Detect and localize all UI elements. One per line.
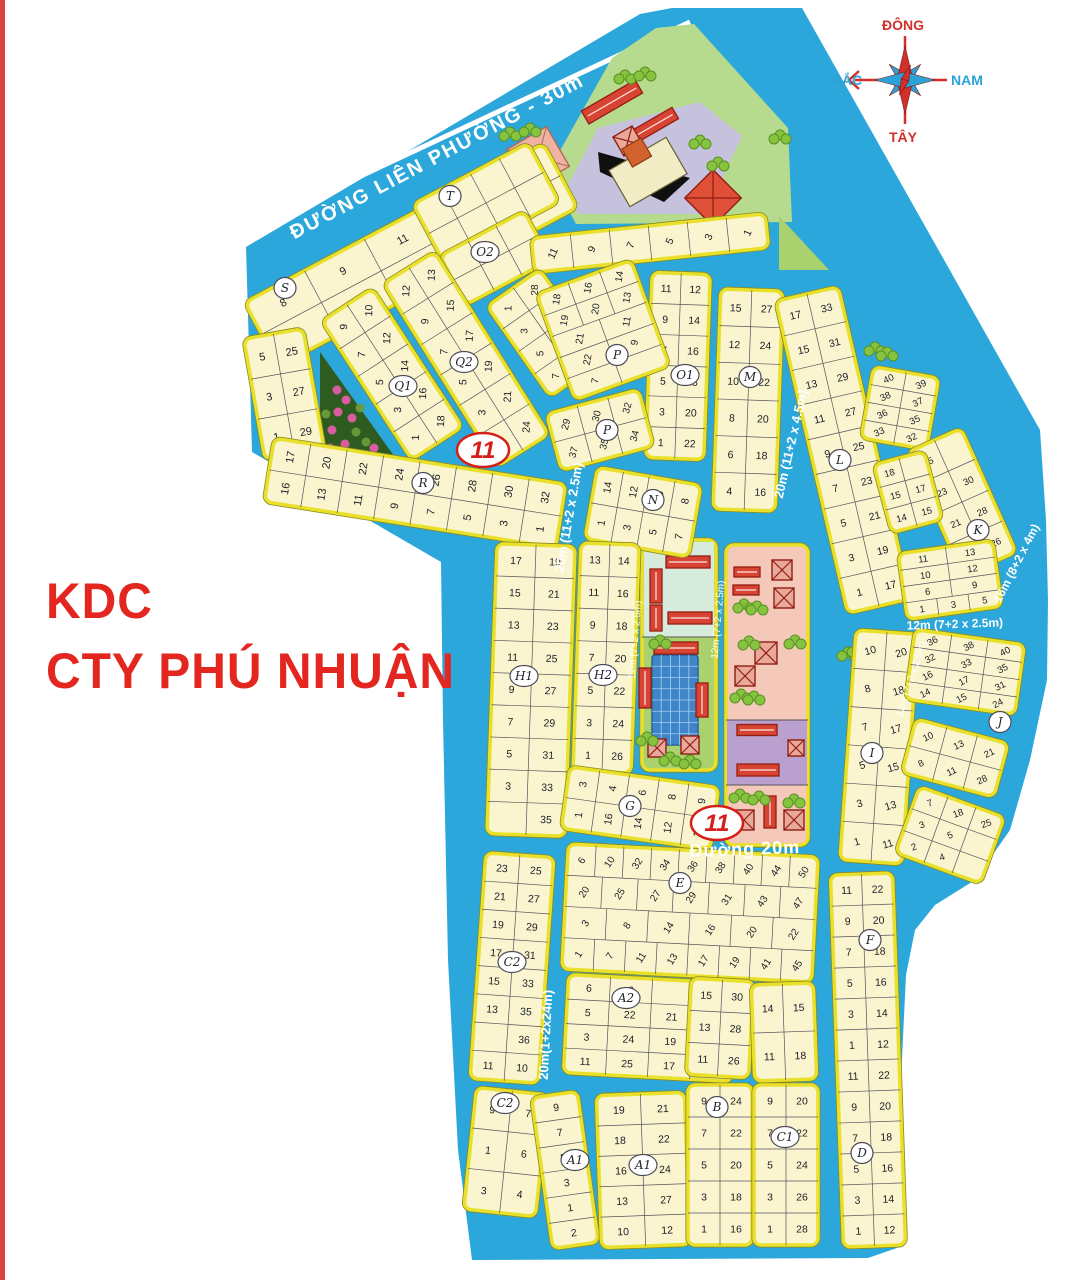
lot-number: 5 bbox=[457, 379, 469, 386]
svg-text:H1: H1 bbox=[514, 669, 533, 683]
svg-text:K: K bbox=[973, 523, 984, 537]
lot-number: 24 bbox=[730, 1096, 742, 1108]
svg-text:F: F bbox=[865, 933, 875, 947]
flower-dot bbox=[348, 414, 357, 423]
flower-dot bbox=[362, 438, 371, 447]
lot-number: 25 bbox=[621, 1058, 633, 1071]
lot-number: 31 bbox=[542, 750, 554, 762]
lot-number: 21 bbox=[548, 589, 560, 601]
lot-number: 20 bbox=[873, 915, 885, 927]
flower-dot bbox=[334, 408, 343, 417]
block-badge-L: L bbox=[829, 450, 851, 471]
lot-number: 7 bbox=[356, 351, 368, 357]
lot-number: 7 bbox=[701, 1128, 707, 1140]
lot-number: 18 bbox=[616, 620, 628, 632]
block-badge-T: T bbox=[439, 186, 461, 207]
lot-number: 9 bbox=[845, 916, 851, 928]
svg-text:E: E bbox=[675, 876, 685, 890]
lot-number: 25 bbox=[285, 345, 299, 359]
lot-number: 24 bbox=[521, 421, 534, 433]
lot-number: 5 bbox=[587, 685, 593, 697]
lot-number: 12 bbox=[627, 485, 641, 499]
lot-number: 14 bbox=[632, 817, 646, 830]
plan-title-line1: KDC bbox=[46, 566, 455, 636]
lot-number: 12 bbox=[883, 1224, 895, 1236]
lot-number: 15 bbox=[793, 1002, 805, 1014]
lot-number: 29 bbox=[543, 717, 555, 729]
lot-number: 5 bbox=[506, 748, 512, 760]
lot-number: 17 bbox=[464, 330, 477, 342]
lot-number: 18 bbox=[614, 1135, 626, 1147]
block-badge-H2: H2 bbox=[589, 665, 617, 686]
lot-number: 19 bbox=[483, 360, 496, 372]
svg-text:N: N bbox=[647, 493, 659, 507]
block-H1: 171915211323112592772953133335 bbox=[485, 542, 577, 839]
lot-number: 22 bbox=[623, 1009, 635, 1022]
lot-number: 20 bbox=[757, 413, 769, 425]
lot-number: 24 bbox=[759, 340, 771, 352]
lot-number: 11 bbox=[482, 1060, 494, 1073]
lot-number: 14 bbox=[688, 315, 700, 327]
svg-text:S: S bbox=[281, 281, 289, 295]
building-icon bbox=[681, 736, 699, 754]
lot-number: 21 bbox=[494, 891, 507, 904]
lot-number: 5 bbox=[584, 1007, 591, 1019]
svg-text:A1: A1 bbox=[566, 1153, 583, 1167]
block-J-top: 363840323335161731141524 bbox=[903, 627, 1026, 716]
block-badge-C1: C1 bbox=[771, 1127, 799, 1148]
lot-number: 3 bbox=[854, 1195, 860, 1207]
building-icon bbox=[650, 569, 662, 603]
block-badge-R: R bbox=[412, 473, 434, 494]
lot-number: 20 bbox=[730, 1160, 742, 1172]
lot-number: 16 bbox=[754, 487, 766, 499]
block-badge-I: I bbox=[861, 743, 883, 764]
lot-number: 9 bbox=[589, 620, 595, 632]
lot-number: 3 bbox=[392, 407, 404, 413]
lot-number: 29 bbox=[526, 921, 539, 934]
lot-number: 11 bbox=[661, 283, 672, 295]
svg-text:C1: C1 bbox=[777, 1130, 794, 1144]
lot-number: 13 bbox=[315, 488, 329, 502]
lot-number: 25 bbox=[546, 653, 558, 665]
lot-number: 16 bbox=[730, 1224, 742, 1236]
lot-number: 11 bbox=[352, 494, 366, 507]
lot-number: 16 bbox=[615, 1165, 627, 1177]
svg-text:L: L bbox=[835, 453, 844, 467]
lot-number: 19 bbox=[613, 1104, 625, 1116]
lot-number: 24 bbox=[393, 467, 407, 481]
svg-text:B: B bbox=[712, 1100, 722, 1114]
block-E: 6103234363840445020252729314347381416202… bbox=[560, 842, 820, 984]
lot-number: 9 bbox=[338, 324, 350, 330]
lot-number: 12 bbox=[661, 821, 675, 834]
lot-number: 15 bbox=[488, 975, 501, 988]
lot-number: 24 bbox=[796, 1160, 808, 1172]
lot-number: 14 bbox=[601, 481, 615, 495]
svg-text:A1: A1 bbox=[634, 1158, 651, 1172]
lot-number: 12 bbox=[661, 1224, 673, 1236]
block-badge-H1: H1 bbox=[510, 666, 538, 687]
lot-number: 7 bbox=[438, 348, 450, 355]
lot-number: 9 bbox=[508, 684, 514, 696]
svg-text:A2: A2 bbox=[617, 991, 634, 1005]
lot-number: 12 bbox=[728, 339, 740, 351]
block-badge-Q1: Q1 bbox=[389, 376, 417, 397]
lot-number: 24 bbox=[612, 718, 624, 730]
lot-number: 28 bbox=[466, 479, 480, 493]
lot-number: 6 bbox=[727, 449, 733, 461]
lot-number: 14 bbox=[762, 1003, 774, 1015]
lot-number: 8 bbox=[729, 412, 735, 424]
block-B-up: 153013281126 bbox=[684, 976, 755, 1079]
compass-label-bac: BẮC bbox=[832, 71, 862, 88]
lot-number: 16 bbox=[602, 812, 616, 825]
lot-number: 23 bbox=[496, 862, 509, 875]
plan-title: KDC CTY PHÚ NHUẬN bbox=[46, 566, 472, 706]
lot-number: 24 bbox=[622, 1034, 634, 1047]
svg-text:P: P bbox=[612, 348, 622, 362]
lot-number: 10 bbox=[727, 376, 739, 388]
lot-number: 11 bbox=[579, 1056, 591, 1069]
svg-text:I: I bbox=[869, 746, 875, 760]
lot-number: 3 bbox=[505, 781, 511, 793]
lot-number: 35 bbox=[520, 1006, 533, 1019]
lot-number: 17 bbox=[284, 450, 298, 464]
lot-number: 17 bbox=[510, 555, 522, 567]
lot-number: 3 bbox=[586, 717, 592, 729]
block-badge-N: N bbox=[642, 490, 664, 511]
flower-dot bbox=[342, 396, 351, 405]
lot-number: 10 bbox=[363, 304, 375, 316]
svg-text:Q1: Q1 bbox=[394, 379, 411, 393]
lot-number: 6 bbox=[586, 983, 593, 995]
lot-number: 16 bbox=[881, 1162, 893, 1174]
svg-text:T: T bbox=[446, 189, 455, 203]
block-badge-D: D bbox=[851, 1143, 873, 1164]
svg-text:M: M bbox=[743, 370, 757, 384]
lot-number: 27 bbox=[528, 893, 541, 906]
lot-number: 12 bbox=[381, 332, 393, 344]
lot-number: 3 bbox=[476, 409, 488, 416]
block-badge-A1: A1 bbox=[629, 1155, 657, 1176]
lot-number: 16 bbox=[279, 482, 293, 496]
block-K-bot: 1113101269135 bbox=[896, 538, 1004, 621]
lot-number: 11 bbox=[847, 1071, 858, 1083]
svg-text:O2: O2 bbox=[476, 245, 493, 259]
lot-number: 3 bbox=[848, 1009, 854, 1021]
lot-number: 5 bbox=[767, 1160, 773, 1172]
lot-number: 13 bbox=[698, 1022, 710, 1035]
building-icon bbox=[668, 612, 712, 624]
lot-number: 7 bbox=[588, 652, 594, 664]
lot-number: 3 bbox=[701, 1192, 707, 1204]
lot-number: 36 bbox=[518, 1034, 531, 1047]
lot-number: 23 bbox=[547, 621, 559, 633]
svg-text:11: 11 bbox=[471, 437, 496, 464]
lot-number: 14 bbox=[618, 555, 630, 567]
lot-number: 26 bbox=[611, 751, 623, 763]
lot-number: 11 bbox=[764, 1051, 775, 1063]
lot-number: 30 bbox=[731, 991, 743, 1004]
lot-number: 3 bbox=[520, 328, 531, 334]
block-C1-up: 14151118 bbox=[749, 981, 818, 1083]
building-icon bbox=[735, 666, 755, 686]
lot-number: 13 bbox=[964, 547, 976, 559]
lot-number: 18 bbox=[880, 1131, 892, 1143]
lot-number: 3 bbox=[583, 1031, 590, 1043]
building-icon bbox=[733, 585, 759, 595]
svg-text:H2: H2 bbox=[593, 668, 612, 682]
lot-number: 9 bbox=[662, 314, 668, 326]
building-icon bbox=[784, 810, 804, 830]
lot-number: 12 bbox=[400, 285, 413, 297]
lot-number: 5 bbox=[701, 1160, 707, 1172]
lot-number: 14 bbox=[876, 1007, 888, 1019]
lot-number: 28 bbox=[729, 1023, 741, 1036]
building-icon bbox=[639, 668, 651, 708]
lot-number: 16 bbox=[875, 976, 887, 988]
lot-number: 22 bbox=[730, 1128, 742, 1140]
block-K-ne: 4039383736353332 bbox=[859, 364, 941, 451]
building-icon bbox=[737, 764, 779, 776]
lot-number: 15 bbox=[509, 587, 521, 599]
compass-label-nam: NAM bbox=[951, 72, 983, 88]
lot-number: 20 bbox=[320, 456, 334, 470]
route-11-marker: 11 bbox=[691, 806, 743, 840]
block-badge-B: B bbox=[706, 1097, 728, 1118]
lot-number: 7 bbox=[507, 716, 513, 728]
lot-number: 7 bbox=[846, 947, 852, 959]
block-badge-A2: A2 bbox=[612, 988, 640, 1009]
lot-number: 35 bbox=[540, 814, 552, 826]
lot-number: 1 bbox=[585, 750, 591, 762]
lot-number: 5 bbox=[535, 350, 546, 356]
plan-title-line2: CTY PHÚ NHUẬN bbox=[46, 636, 455, 706]
building-icon bbox=[666, 556, 710, 568]
block-badge-O2: O2 bbox=[471, 242, 499, 263]
building-icon bbox=[788, 740, 804, 756]
building-icon bbox=[772, 560, 792, 580]
block-badge-P: P bbox=[596, 420, 618, 441]
lot-number: 1 bbox=[410, 434, 422, 440]
lot-number: 7 bbox=[551, 373, 562, 379]
lot-number: 22 bbox=[872, 884, 884, 896]
flower-dot bbox=[333, 386, 342, 395]
lot-number: 14 bbox=[882, 1193, 894, 1205]
lot-number: 12 bbox=[689, 284, 701, 296]
lot-number: 22 bbox=[684, 438, 696, 450]
lot-number: 5 bbox=[847, 978, 853, 990]
lot-number: 33 bbox=[541, 782, 553, 794]
block-badge-A1: A1 bbox=[561, 1150, 589, 1171]
lot-number: 21 bbox=[502, 390, 515, 402]
lot-number: 3 bbox=[659, 406, 665, 418]
lot-number: 30 bbox=[503, 485, 517, 499]
building-icon bbox=[650, 605, 662, 631]
lot-number: 5 bbox=[374, 379, 386, 385]
lot-number: 16 bbox=[617, 588, 629, 600]
lot-number: 21 bbox=[657, 1103, 669, 1115]
lot-number: 17 bbox=[663, 1060, 675, 1073]
flower-dot bbox=[322, 410, 331, 419]
route-11-marker: 11 bbox=[457, 433, 509, 467]
svg-text:O1: O1 bbox=[676, 368, 693, 382]
svg-text:C2: C2 bbox=[497, 1096, 514, 1110]
lot-number: 25 bbox=[530, 865, 543, 878]
lot-number: 1 bbox=[855, 1226, 861, 1238]
lot-number: 13 bbox=[616, 1196, 628, 1208]
lot-number: 20 bbox=[614, 653, 626, 665]
lot-number: 13 bbox=[508, 619, 520, 631]
lot-number: 1 bbox=[658, 437, 664, 449]
svg-text:R: R bbox=[417, 476, 427, 490]
building-icon bbox=[737, 725, 777, 736]
lot-number: 3 bbox=[767, 1192, 773, 1204]
lot-number: 11 bbox=[917, 553, 928, 565]
lot-number: 10 bbox=[516, 1062, 529, 1075]
lot-number: 10 bbox=[919, 570, 931, 582]
flower-dot bbox=[352, 428, 361, 437]
lot-number: 18 bbox=[730, 1192, 742, 1204]
lot-number: 4 bbox=[726, 486, 732, 498]
building-icon bbox=[696, 683, 708, 717]
block-badge-P: P bbox=[606, 345, 628, 366]
lot-number: 9 bbox=[851, 1102, 857, 1114]
block-badge-K: K bbox=[967, 520, 989, 541]
lot-number: 13 bbox=[589, 554, 601, 566]
block-badge-E: E bbox=[669, 873, 691, 894]
lot-number: 15 bbox=[445, 299, 458, 311]
lot-number: 13 bbox=[486, 1003, 499, 1016]
svg-text:G: G bbox=[625, 799, 635, 813]
lot-number: 26 bbox=[728, 1055, 740, 1068]
svg-text:D: D bbox=[856, 1146, 867, 1160]
lot-number: 11 bbox=[697, 1054, 709, 1067]
block-badge-C2: C2 bbox=[498, 952, 526, 973]
lot-number: 24 bbox=[659, 1164, 671, 1176]
lot-number: 22 bbox=[357, 462, 371, 476]
lot-number: 9 bbox=[767, 1096, 773, 1108]
svg-text:C2: C2 bbox=[504, 955, 521, 969]
lot-number: 27 bbox=[544, 685, 556, 697]
lot-number: 14 bbox=[399, 360, 411, 372]
lot-number: 16 bbox=[417, 387, 429, 399]
svg-text:Q2: Q2 bbox=[455, 355, 472, 369]
lot-number: 1 bbox=[849, 1040, 855, 1052]
lot-number: 18 bbox=[794, 1050, 806, 1062]
compass-label-dong: ĐÔNG bbox=[882, 16, 924, 33]
block-badge-O1: O1 bbox=[671, 365, 699, 386]
lot-number: 27 bbox=[660, 1194, 672, 1206]
building-icon bbox=[734, 567, 760, 577]
flower-dot bbox=[328, 426, 337, 435]
lot-number: 11 bbox=[588, 587, 599, 599]
lot-number: 19 bbox=[492, 919, 505, 932]
block-badge-G: G bbox=[619, 796, 641, 817]
lot-number: 26 bbox=[796, 1192, 808, 1204]
lot-number: 13 bbox=[426, 269, 439, 281]
block-C1-low: 920722524326128 bbox=[752, 1083, 820, 1247]
plan-canvas: 8911131562220181652532712911975311112914… bbox=[0, 0, 1068, 1280]
lot-number: 22 bbox=[658, 1133, 670, 1145]
flower-dot bbox=[356, 404, 365, 413]
lot-number: 22 bbox=[878, 1069, 890, 1081]
block-badge-C2: C2 bbox=[491, 1093, 519, 1114]
block-badge-Q2: Q2 bbox=[450, 352, 478, 373]
block-badge-S: S bbox=[274, 278, 296, 299]
lot-number: 18 bbox=[435, 415, 447, 427]
block-F-D: 11229207185163141121122920718516314112 bbox=[828, 871, 907, 1249]
lot-number: 5 bbox=[660, 375, 666, 387]
compass-label-tay: TÂY bbox=[889, 128, 918, 145]
lot-number: 28 bbox=[796, 1224, 808, 1236]
lot-number: 15 bbox=[730, 302, 742, 314]
svg-text:P: P bbox=[602, 423, 612, 437]
lot-number: 11 bbox=[507, 652, 518, 664]
lot-number: 27 bbox=[761, 303, 773, 315]
lot-number: 1 bbox=[701, 1224, 707, 1236]
lot-number: 9 bbox=[419, 318, 431, 325]
lot-number: 10 bbox=[617, 1226, 629, 1238]
lot-number: 18 bbox=[755, 450, 767, 462]
block-badge-J: J bbox=[989, 712, 1011, 733]
svg-text:11: 11 bbox=[705, 810, 730, 837]
lot-number: 19 bbox=[664, 1036, 676, 1049]
block-badge-F: F bbox=[859, 930, 881, 951]
lot-number: 20 bbox=[796, 1096, 808, 1108]
lot-number: 12 bbox=[966, 563, 978, 575]
lot-number: 32 bbox=[539, 491, 553, 505]
lot-number: 12 bbox=[877, 1038, 889, 1050]
lot-number: 27 bbox=[292, 385, 306, 399]
lot-number: 5 bbox=[853, 1164, 859, 1176]
building-icon bbox=[774, 588, 794, 608]
lot-number: 33 bbox=[522, 978, 535, 991]
lot-number: 1 bbox=[504, 305, 515, 311]
lot-number: 21 bbox=[665, 1011, 677, 1024]
road-label: Đường 20m bbox=[689, 837, 800, 861]
lot-number: 11 bbox=[841, 885, 852, 897]
lot-number: 15 bbox=[700, 990, 712, 1003]
lot-number: 20 bbox=[879, 1100, 891, 1112]
lot-number: 20 bbox=[685, 407, 697, 419]
lot-number: 1 bbox=[767, 1224, 773, 1236]
lot-number: 22 bbox=[613, 686, 625, 698]
lot-number: 16 bbox=[687, 346, 699, 358]
block-badge-M: M bbox=[739, 367, 761, 388]
lot-number: 29 bbox=[299, 425, 313, 439]
